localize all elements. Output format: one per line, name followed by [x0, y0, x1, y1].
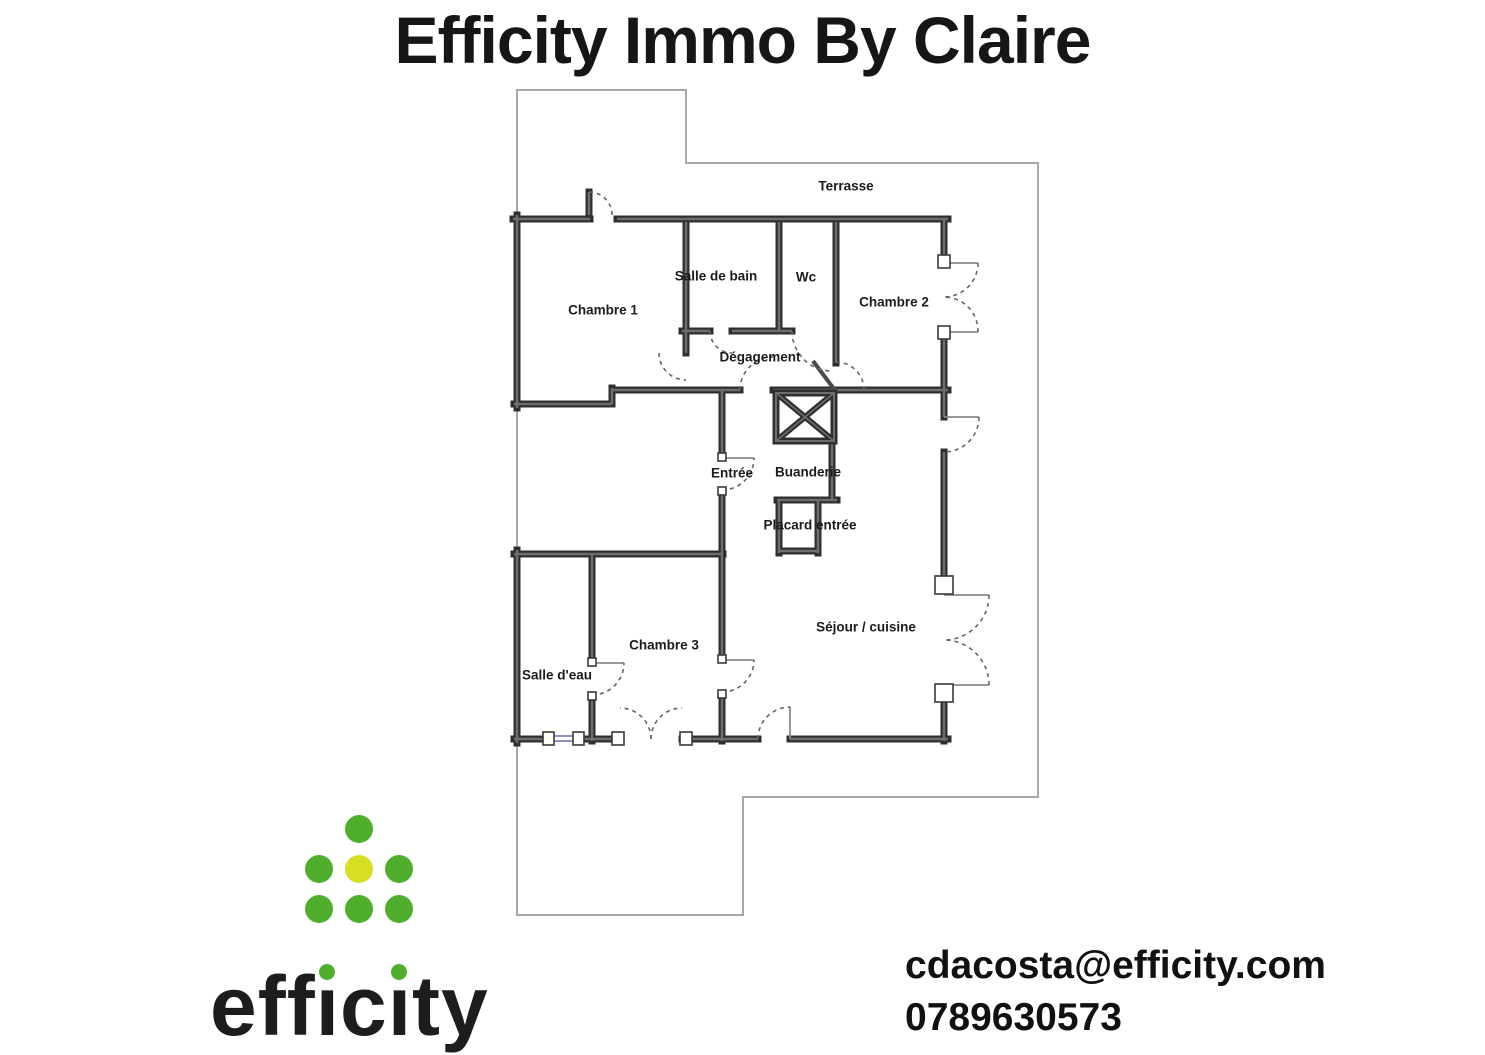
contact-phone: 0789630573 [905, 992, 1326, 1044]
contact-email: cdacosta@efficity.com [905, 940, 1326, 992]
room-label-chambre-1: Chambre 1 [568, 303, 638, 318]
room-label-buanderie: Buanderie [775, 465, 841, 480]
room-label-placard-entree: Placard entrée [763, 518, 856, 533]
efficity-logo: effıcıty [210, 806, 510, 1052]
room-label-chambre-2: Chambre 2 [859, 295, 929, 310]
contact-block: cdacosta@efficity.com 0789630573 [905, 940, 1326, 1044]
window-symbol [543, 732, 584, 745]
page: { "title": "Efficity Immo By Claire", "f… [0, 0, 1485, 1053]
room-label-degagement: Dégagement [719, 350, 800, 365]
room-label-terrasse: Terrasse [818, 179, 873, 194]
room-label-wc: Wc [796, 270, 816, 285]
room-label-chambre-3: Chambre 3 [629, 638, 699, 653]
wordmark-i-dot-icon [391, 964, 407, 980]
efficity-logo-dots-icon [297, 806, 421, 936]
room-label-sejour-cuisine: Séjour / cuisine [816, 620, 916, 635]
room-label-salle-de-bain: Salle de bain [675, 269, 758, 284]
crossed-box-symbol [776, 393, 834, 441]
efficity-wordmark: effıcıty [210, 958, 510, 1052]
chambre2-door-leaf [813, 361, 834, 389]
wordmark-i-dot-icon [319, 964, 335, 980]
room-label-salle-d-eau: Salle d'eau [522, 668, 592, 683]
room-label-entree: Entrée [711, 466, 753, 481]
